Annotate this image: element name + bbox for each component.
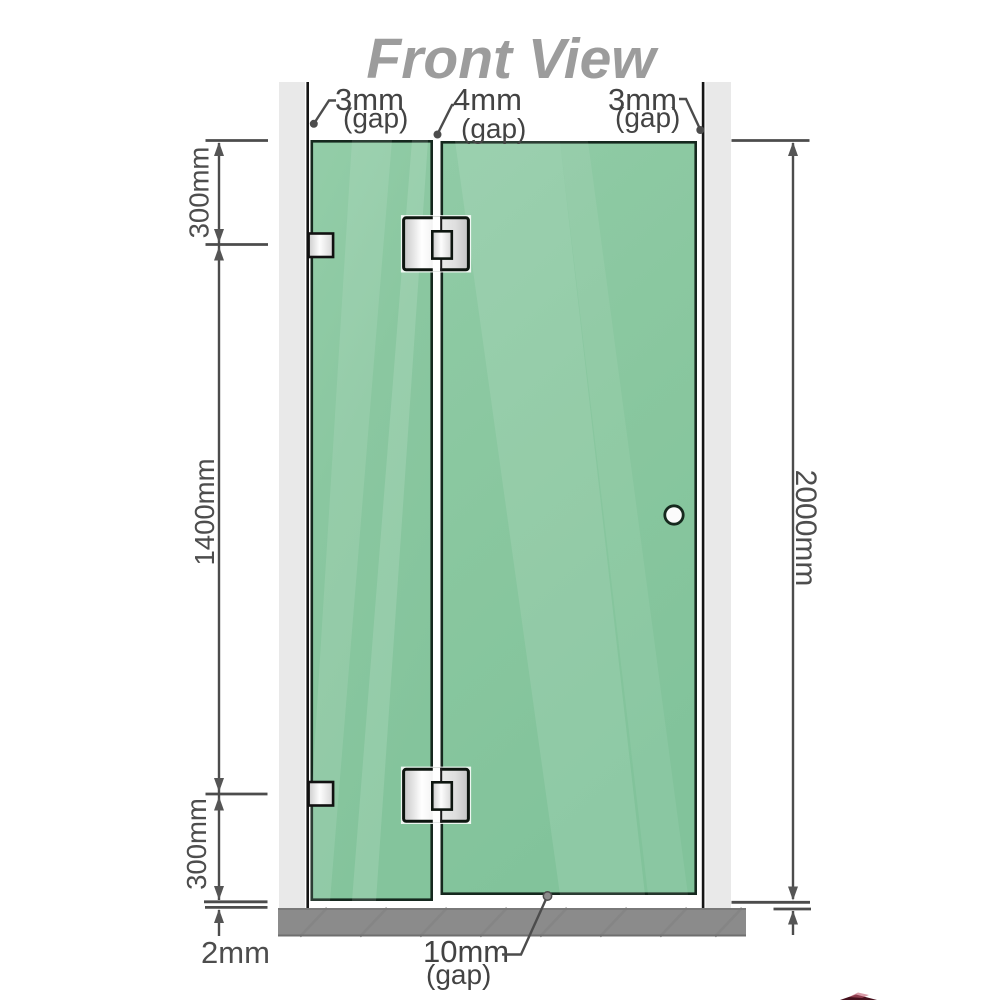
- svg-text:(gap): (gap): [426, 959, 491, 990]
- svg-text:(gap): (gap): [343, 103, 408, 134]
- svg-text:1400mm: 1400mm: [189, 459, 220, 566]
- svg-text:2000mm: 2000mm: [789, 470, 822, 587]
- svg-text:300mm: 300mm: [181, 798, 212, 890]
- svg-text:300mm: 300mm: [184, 147, 215, 239]
- svg-text:(gap): (gap): [615, 102, 680, 133]
- svg-text:(gap): (gap): [461, 113, 526, 144]
- svg-text:4mm: 4mm: [453, 82, 522, 117]
- svg-text:2mm: 2mm: [201, 935, 270, 970]
